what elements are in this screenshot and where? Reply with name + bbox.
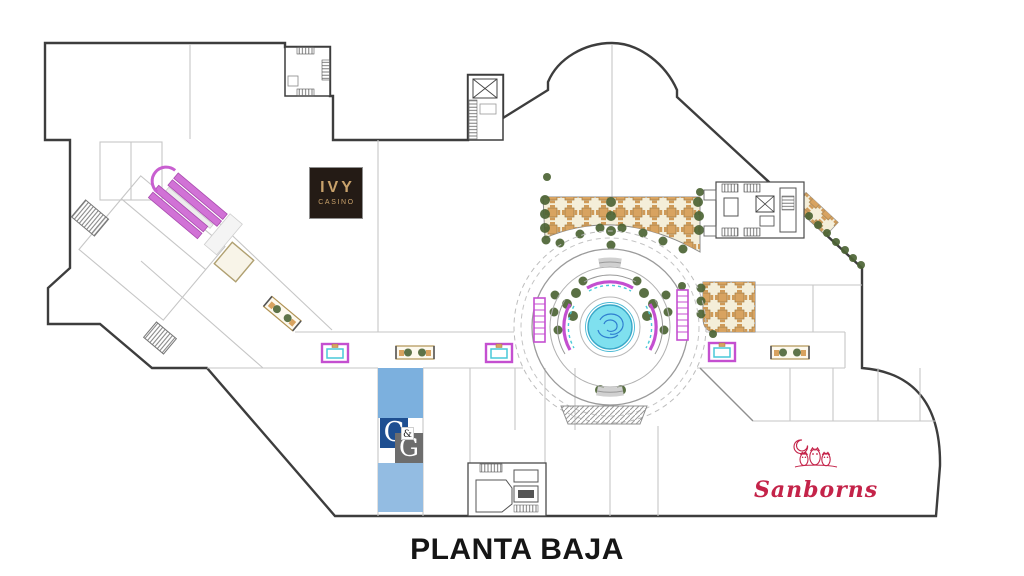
service-core-bottom: [468, 463, 546, 516]
ivy-casino-subname: CASINO: [317, 199, 354, 206]
plaza-ramp: [561, 406, 647, 424]
floor-plan-page: IVY CASINO C G & Sanborns PLANTA BAJA: [0, 0, 1024, 576]
c-and-g-logo: C G &: [378, 416, 424, 465]
plan-title: PLANTA BAJA: [367, 533, 667, 567]
sanborns-name: Sanborns: [754, 479, 876, 501]
highlighted-unit-lower: [378, 463, 423, 512]
c-and-g-ampersand: &: [401, 427, 414, 440]
fountain: [586, 303, 635, 352]
highlighted-unit-upper: [378, 368, 423, 418]
sanborns-owls-icon: [789, 436, 841, 474]
elevator-core-top: [468, 75, 503, 140]
service-core-right: [704, 182, 804, 238]
service-core-top-left: [285, 47, 330, 96]
right-terrace: [703, 282, 755, 332]
ivy-casino-logo: IVY CASINO: [309, 167, 363, 219]
ivy-casino-name: IVY: [317, 180, 355, 196]
sanborns-logo: Sanborns: [754, 436, 876, 501]
